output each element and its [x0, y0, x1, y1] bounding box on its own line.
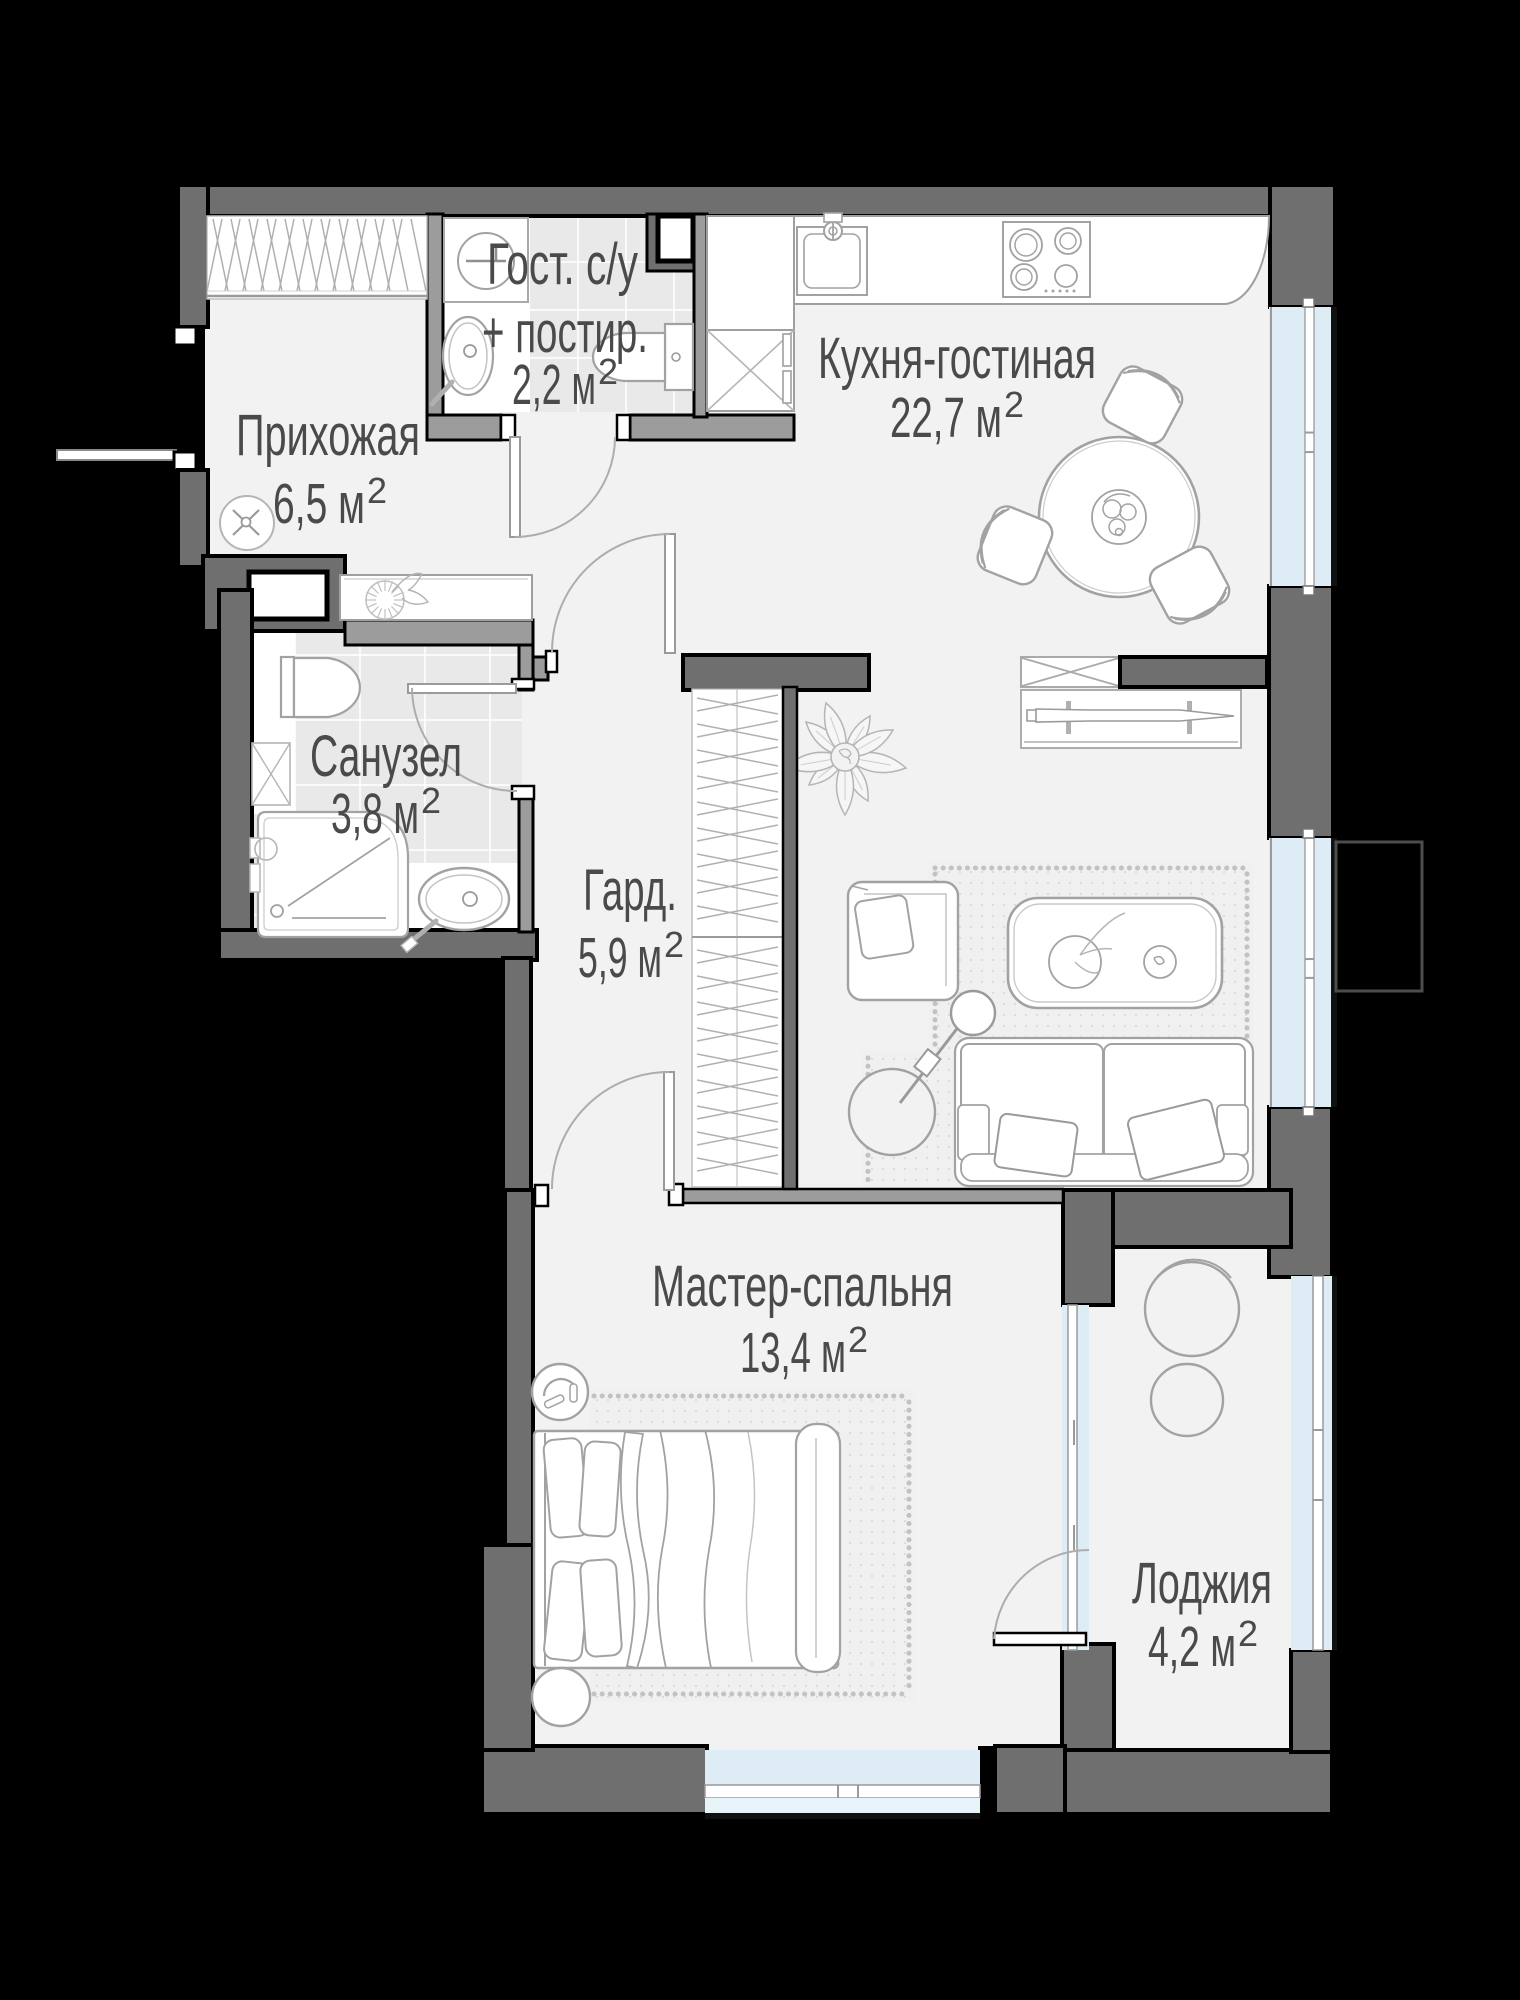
svg-text:2: 2 [1004, 384, 1024, 425]
svg-text:5,9 м: 5,9 м [578, 926, 662, 990]
svg-text:13,4 м: 13,4 м [740, 1321, 846, 1385]
svg-text:2: 2 [1238, 1613, 1258, 1654]
svg-text:Кухня-гостиная: Кухня-гостиная [818, 326, 1096, 391]
svg-text:Лоджия: Лоджия [1132, 1551, 1272, 1616]
svg-text:2: 2 [664, 924, 684, 965]
svg-text:Гост. с/у: Гост. с/у [487, 232, 638, 297]
svg-text:2,2 м: 2,2 м [512, 353, 596, 417]
svg-text:Прихожая: Прихожая [236, 403, 420, 468]
svg-text:6,5 м: 6,5 м [273, 472, 365, 536]
svg-text:3,8 м: 3,8 м [331, 782, 419, 846]
svg-text:2: 2 [367, 470, 387, 511]
svg-text:2: 2 [421, 780, 441, 821]
svg-text:2: 2 [598, 351, 618, 392]
svg-text:Гард.: Гард. [583, 858, 677, 923]
svg-text:2: 2 [848, 1319, 868, 1360]
svg-text:Мастер-спальня: Мастер-спальня [652, 1254, 953, 1319]
svg-text:22,7 м: 22,7 м [890, 386, 1002, 450]
svg-text:4,2 м: 4,2 м [1148, 1615, 1236, 1679]
